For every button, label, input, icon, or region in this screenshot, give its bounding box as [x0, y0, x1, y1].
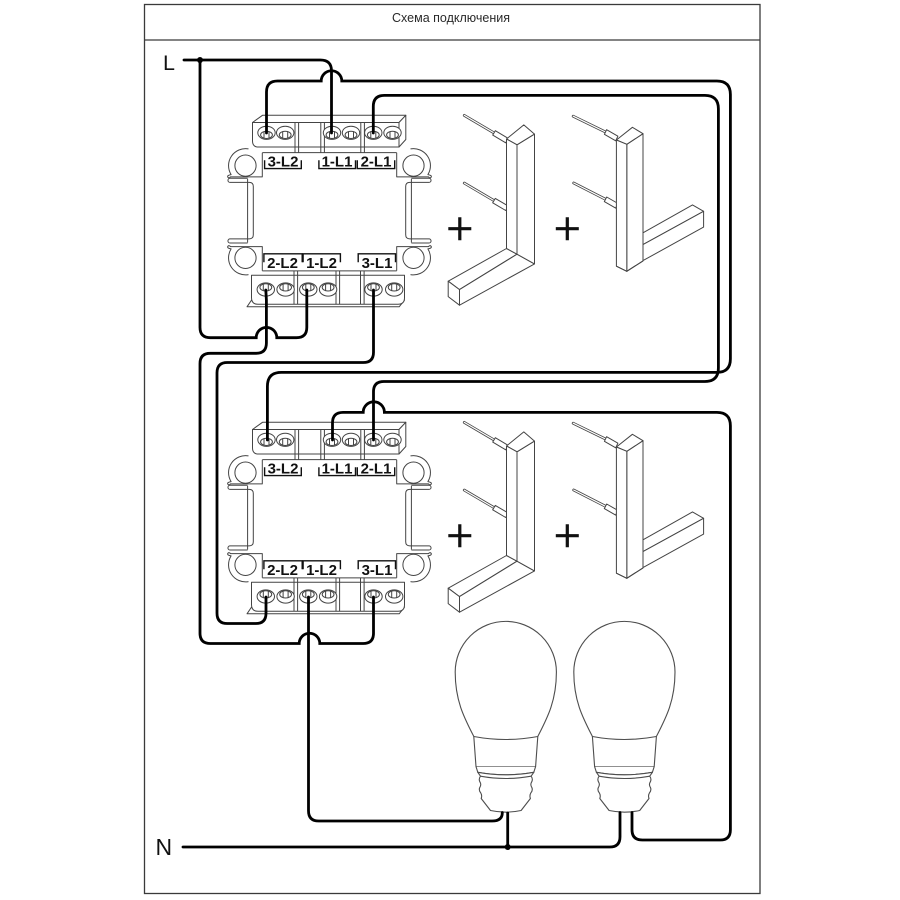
svg-text:3-L2: 3-L2: [268, 154, 299, 171]
svg-text:N: N: [156, 834, 173, 860]
svg-text:1-L2: 1-L2: [306, 562, 337, 579]
svg-text:2-L1: 2-L1: [361, 461, 392, 478]
svg-text:2-L1: 2-L1: [361, 154, 392, 171]
svg-text:3-L1: 3-L1: [362, 255, 393, 272]
svg-text:L: L: [163, 51, 175, 75]
svg-text:3-L2: 3-L2: [268, 461, 299, 478]
svg-text:3-L1: 3-L1: [362, 562, 393, 579]
svg-text:1-L2: 1-L2: [306, 255, 337, 272]
svg-text:2-L2: 2-L2: [267, 255, 298, 272]
svg-text:Схема подключения: Схема подключения: [392, 11, 510, 25]
svg-text:1-L1: 1-L1: [322, 461, 353, 478]
svg-text:1-L1: 1-L1: [322, 154, 353, 171]
svg-text:2-L2: 2-L2: [267, 562, 298, 579]
